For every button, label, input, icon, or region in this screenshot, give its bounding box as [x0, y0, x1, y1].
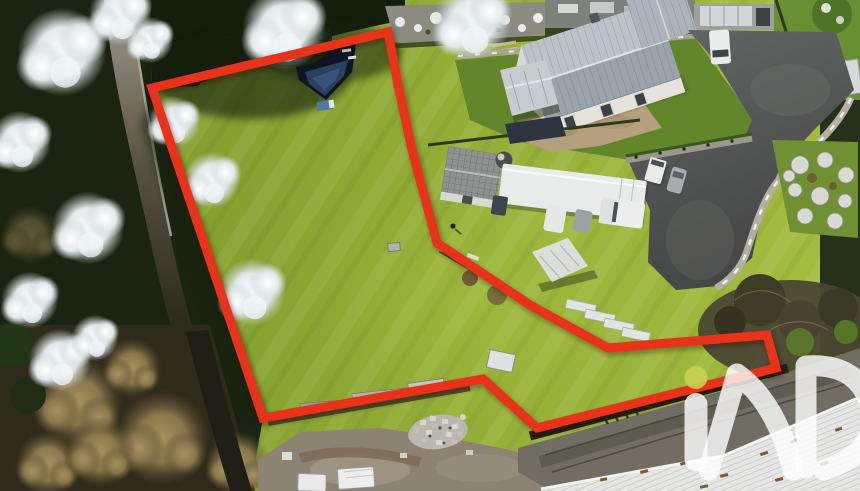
garage-door — [756, 8, 770, 26]
aerial-photo-stage — [0, 0, 860, 491]
grey-box — [388, 243, 401, 252]
logo-i-dot — [685, 366, 708, 389]
white-van-top — [709, 29, 731, 64]
truck-cab — [491, 195, 508, 216]
aerial-photo — [0, 0, 860, 491]
